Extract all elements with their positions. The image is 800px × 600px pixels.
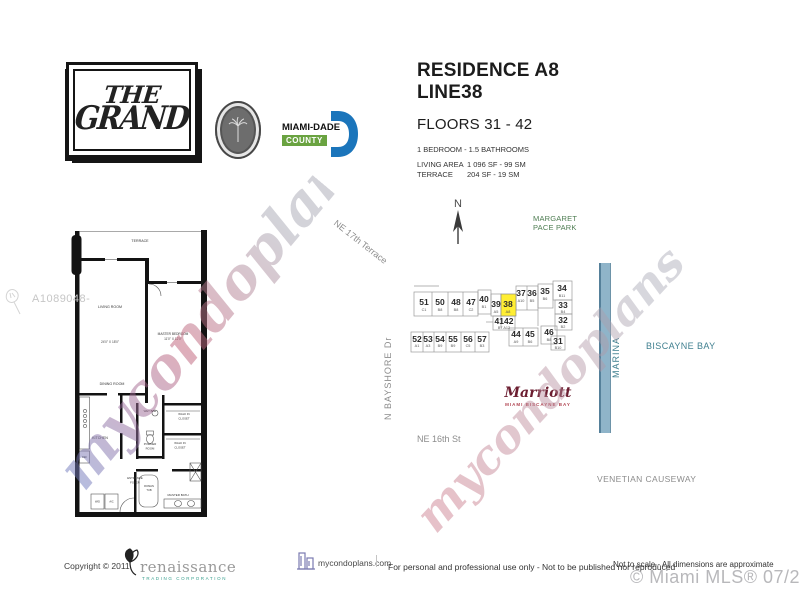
svg-text:FOYER: FOYER (130, 481, 140, 485)
condo-buildings-icon (296, 552, 316, 570)
svg-text:C1: C1 (422, 308, 427, 312)
svg-text:45: 45 (525, 329, 535, 339)
svg-text:B1: B1 (482, 305, 487, 309)
svg-text:A/C: A/C (109, 500, 113, 504)
the-grand-logo-frame: THE GRAND (73, 69, 191, 151)
line-title: LINE38 (417, 82, 657, 104)
svg-text:ROMAN: ROMAN (144, 484, 154, 488)
svg-text:35: 35 (540, 286, 550, 296)
the-grand-logo: THE GRAND (66, 62, 198, 158)
compass-n-label: N (446, 198, 470, 210)
mycondoplans-url: mycondoplans.com (318, 558, 391, 568)
svg-text:A1: A1 (415, 344, 420, 348)
mls-copyright: © Miami MLS® 07/2020 (630, 567, 800, 588)
renaissance-flower-icon (120, 548, 142, 576)
svg-text:39: 39 (491, 299, 501, 309)
svg-text:B10: B10 (555, 346, 562, 350)
svg-text:B8: B8 (547, 338, 552, 342)
biscayne-bay-label: BISCAYNE BAY (646, 341, 716, 351)
svg-text:KITCHEN: KITCHEN (92, 436, 108, 440)
svg-text:ROOM: ROOM (146, 447, 155, 451)
svg-text:54: 54 (435, 334, 445, 344)
svg-text:48: 48 (451, 297, 461, 307)
mls-watermark-icon (4, 286, 30, 318)
floors-range: FLOORS 31 - 42 (417, 116, 657, 133)
park-label: MARGARET PACE PARK (533, 214, 577, 232)
svg-text:38: 38 (503, 299, 513, 309)
svg-text:B9: B9 (451, 344, 456, 348)
svg-text:34: 34 (557, 283, 567, 293)
svg-text:B8: B8 (454, 308, 459, 312)
svg-text:C2: C2 (469, 308, 474, 312)
svg-text:31: 31 (553, 336, 563, 346)
street-n-bayshore-dr: N BAYSHORE Dr (383, 337, 393, 420)
svg-text:POWDER: POWDER (144, 442, 157, 446)
svg-text:57: 57 (477, 334, 487, 344)
svg-text:DINING ROOM: DINING ROOM (100, 382, 125, 386)
marina-label: MARINA (611, 337, 621, 378)
svg-text:B2: B2 (561, 325, 566, 329)
svg-text:24'0" X 18'0": 24'0" X 18'0" (101, 340, 119, 344)
svg-text:B4: B4 (561, 310, 566, 314)
sitemap-unit-numbers: 51 50 48 47 40 39 38 37 36 35 34 33 32 4… (412, 283, 568, 346)
svg-text:TUB: TUB (146, 488, 151, 492)
svg-text:B8: B8 (438, 308, 443, 312)
svg-text:LIVING ROOM: LIVING ROOM (98, 305, 122, 309)
svg-text:32: 32 (558, 315, 568, 325)
north-arrow-icon (449, 210, 467, 246)
svg-text:52: 52 (412, 334, 422, 344)
svg-text:MASTER BATH: MASTER BATH (167, 493, 188, 497)
svg-text:37: 37 (516, 288, 526, 298)
svg-text:WALK IN: WALK IN (174, 441, 185, 445)
svg-text:B3: B3 (480, 344, 485, 348)
svg-text:B5: B5 (530, 299, 535, 303)
living-area-label: LIVING AREA (417, 160, 467, 170)
floorplan-walls (72, 230, 208, 517)
svg-text:44: 44 (511, 329, 521, 339)
svg-text:B7 A12: B7 A12 (498, 326, 510, 330)
svg-text:55: 55 (448, 334, 458, 344)
unit-floor-plan: TERRACE LIVING ROOM 24'0" X 18'0" MASTER… (60, 225, 210, 520)
floorplan-sheet: THE GRAND MIAMI-DADE COUNTY RESIDENCE A8… (0, 0, 800, 600)
svg-text:51: 51 (419, 297, 429, 307)
the-grand-logo-name: GRAND (73, 98, 190, 136)
svg-text:11'0" X 12'0": 11'0" X 12'0" (164, 337, 182, 341)
svg-text:B9: B9 (438, 344, 443, 348)
building-site-map: 51 50 48 47 40 39 38 37 36 35 34 33 32 4… (405, 270, 605, 365)
svg-text:A5: A5 (494, 310, 499, 314)
svg-text:W/D: W/D (95, 500, 100, 504)
svg-text:WET BAR: WET BAR (144, 409, 157, 413)
street-ne-16th-st: NE 16th St (417, 434, 461, 444)
svg-text:ENTRANCE: ENTRANCE (127, 476, 143, 480)
footer-divider (376, 555, 377, 567)
palm-tree-icon (228, 116, 248, 144)
renaissance-wordmark: renaissance (140, 558, 236, 576)
marriott-logo: Marriott MIAMI BISCAYNE BAY (498, 386, 578, 407)
terrace-label: TERRACE (417, 170, 467, 180)
city-of-miami-seal (215, 101, 261, 159)
park-label-line1: MARGARET (533, 214, 577, 223)
park-label-line2: PACE PARK (533, 223, 577, 232)
svg-text:A9: A9 (514, 340, 519, 344)
terrace-value: 204 SF - 19 SM (467, 170, 657, 180)
svg-text:A8: A8 (506, 310, 511, 314)
svg-text:WALK IN: WALK IN (178, 412, 189, 416)
residence-header: RESIDENCE A8 LINE38 FLOORS 31 - 42 1 BED… (417, 60, 657, 180)
floorplan-room-labels: TERRACE LIVING ROOM 24'0" X 18'0" MASTER… (82, 239, 190, 504)
miami-dade-d-icon (326, 108, 358, 162)
svg-text:CLOSET: CLOSET (174, 446, 185, 450)
renaissance-subtitle: TRADING CORPORATION (142, 576, 227, 581)
svg-text:REF: REF (82, 455, 88, 459)
svg-text:CLOSET: CLOSET (178, 417, 189, 421)
svg-text:33: 33 (558, 300, 568, 310)
svg-text:36: 36 (527, 288, 537, 298)
svg-text:4142: 4142 (495, 316, 514, 326)
unit-specs: 1 BEDROOM - 1.5 BATHROOMS LIVING AREA 1 … (417, 145, 657, 180)
residence-title: RESIDENCE A8 (417, 60, 657, 82)
miami-dade-county-logo: MIAMI-DADE COUNTY (282, 108, 358, 164)
svg-text:B6: B6 (543, 297, 548, 301)
svg-text:TERRACE: TERRACE (131, 239, 149, 243)
svg-text:A10: A10 (518, 299, 525, 303)
street-ne-17th-terrace: NE 17th Terrace (332, 218, 389, 266)
marina-shoreline (599, 263, 611, 433)
miami-dade-county-badge: COUNTY (282, 135, 327, 146)
area-table: LIVING AREA 1 096 SF - 99 SM TERRACE 204… (417, 160, 657, 180)
svg-text:A3: A3 (426, 344, 431, 348)
svg-text:50: 50 (435, 297, 445, 307)
compass-north: N (446, 198, 470, 251)
svg-text:C5: C5 (466, 344, 471, 348)
svg-text:53: 53 (423, 334, 433, 344)
svg-text:B6: B6 (528, 340, 533, 344)
marriott-wordmark: Marriott (498, 386, 578, 400)
mls-photo-code: A1089048- (32, 293, 90, 305)
marriott-subtitle: MIAMI BISCAYNE BAY (498, 402, 578, 407)
svg-text:40: 40 (479, 294, 489, 304)
bedrooms-bathrooms: 1 BEDROOM - 1.5 BATHROOMS (417, 145, 657, 155)
street-venetian-causeway: VENETIAN CAUSEWAY (597, 474, 696, 484)
svg-text:56: 56 (463, 334, 473, 344)
svg-text:47: 47 (466, 297, 476, 307)
living-area-value: 1 096 SF - 99 SM (467, 160, 657, 170)
svg-text:MASTER BEDROOM: MASTER BEDROOM (158, 332, 189, 336)
svg-text:B11: B11 (559, 294, 565, 298)
